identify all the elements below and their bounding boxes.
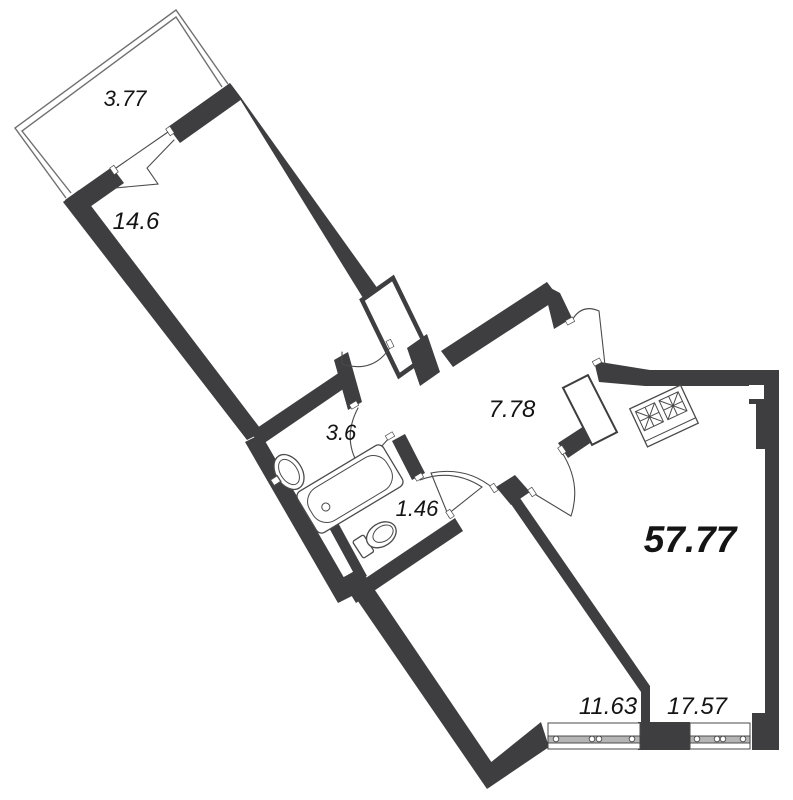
room-area-label-wc: 1.46 [396, 496, 440, 521]
wall-bottom-mid-pier [638, 722, 690, 750]
balcony-door [115, 132, 174, 188]
wall-kitchen-top [594, 361, 779, 386]
entry-door [571, 309, 605, 365]
vent-notch [749, 385, 764, 399]
fixtures-layer [262, 385, 698, 560]
wall-bottom-chamfer [487, 722, 549, 789]
floor-plan-page: 3.77 14.6 3.6 7.78 1.46 57.77 11.63 17.5… [0, 0, 793, 800]
toilet-icon [352, 516, 401, 559]
wall-livingroom-right [230, 83, 378, 298]
vent-notch-lower [749, 404, 756, 449]
room-area-label-kitchen-living: 17.57 [667, 693, 729, 720]
floor-plan-svg: 3.77 14.6 3.6 7.78 1.46 57.77 11.63 17.5… [0, 0, 793, 800]
room-area-label-living-room: 14.6 [113, 208, 160, 235]
stove-icon [630, 385, 699, 447]
hall-niche [563, 375, 617, 445]
window-bedroom [548, 723, 640, 749]
room-area-label-hallway: 7.78 [489, 396, 536, 423]
wall-entry-main [441, 282, 559, 367]
vent-shaft [362, 278, 440, 386]
room-area-label-bathroom: 3.6 [326, 420, 357, 445]
kitchen-door [533, 451, 575, 516]
bathtub-icon [295, 443, 405, 536]
room-area-label-bedroom: 11.63 [579, 693, 638, 720]
window-kitchen [690, 723, 750, 749]
total-area-label: 57.77 [644, 519, 739, 560]
wall-bedroom-left [342, 568, 492, 789]
wall-bedroom-partition [504, 488, 650, 692]
wall-bedroom-partition-foot [641, 686, 650, 723]
wall-left-exterior [63, 190, 263, 440]
wall-balcony-separator-right [168, 83, 242, 143]
room-area-label-balcony: 3.77 [104, 86, 148, 111]
wall-right-exterior [765, 371, 779, 714]
wall-right-step [752, 713, 779, 750]
